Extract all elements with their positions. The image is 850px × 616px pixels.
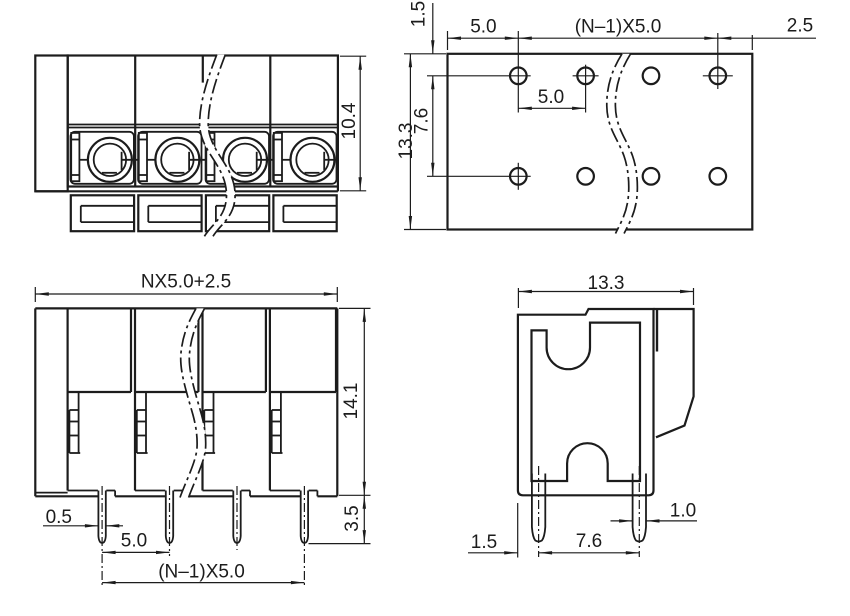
- svg-text:(N–1)X5.0: (N–1)X5.0: [158, 562, 245, 583]
- svg-text:10.4: 10.4: [339, 102, 360, 139]
- svg-text:14.1: 14.1: [341, 383, 362, 420]
- svg-text:5.0: 5.0: [470, 17, 496, 38]
- svg-text:13.3: 13.3: [588, 273, 625, 294]
- svg-text:13.3: 13.3: [396, 123, 417, 160]
- svg-text:7.6: 7.6: [576, 531, 602, 552]
- svg-text:1.5: 1.5: [409, 1, 430, 27]
- svg-text:5.0: 5.0: [121, 531, 147, 552]
- svg-text:1.5: 1.5: [471, 532, 497, 553]
- svg-text:2.5: 2.5: [787, 16, 813, 37]
- svg-text:3.5: 3.5: [342, 505, 363, 531]
- svg-text:NX5.0+2.5: NX5.0+2.5: [141, 272, 231, 293]
- svg-text:1.0: 1.0: [670, 501, 696, 522]
- svg-text:5.0: 5.0: [538, 87, 564, 108]
- svg-text:(N–1)X5.0: (N–1)X5.0: [575, 17, 662, 38]
- svg-text:0.5: 0.5: [46, 507, 72, 528]
